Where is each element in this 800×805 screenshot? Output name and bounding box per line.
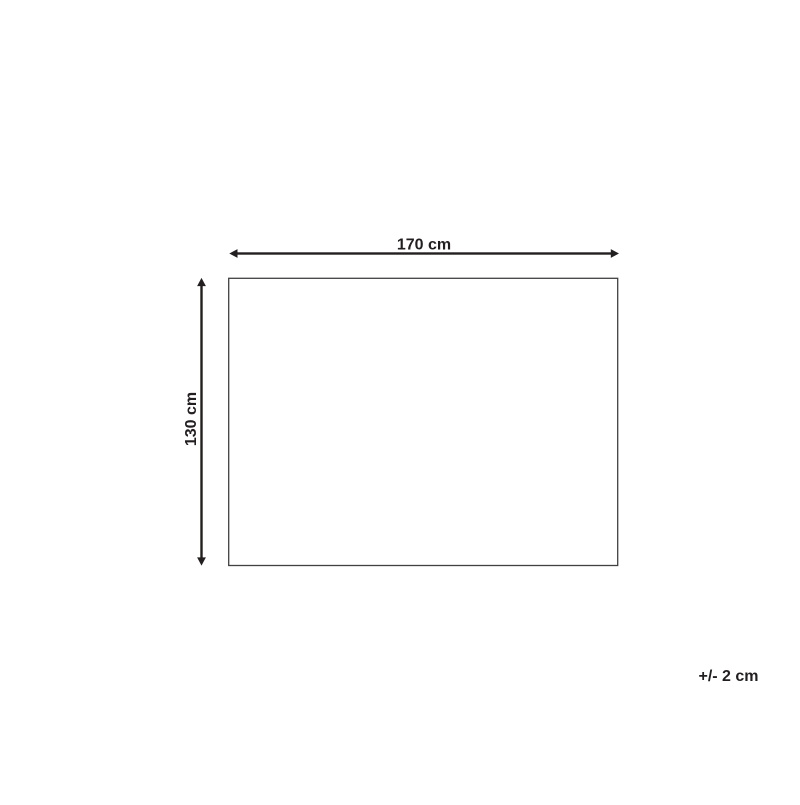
svg-text:130 cm: 130 cm <box>183 392 200 446</box>
svg-text:+/- 2 cm: +/- 2 cm <box>698 668 758 685</box>
svg-text:170 cm: 170 cm <box>397 236 451 253</box>
